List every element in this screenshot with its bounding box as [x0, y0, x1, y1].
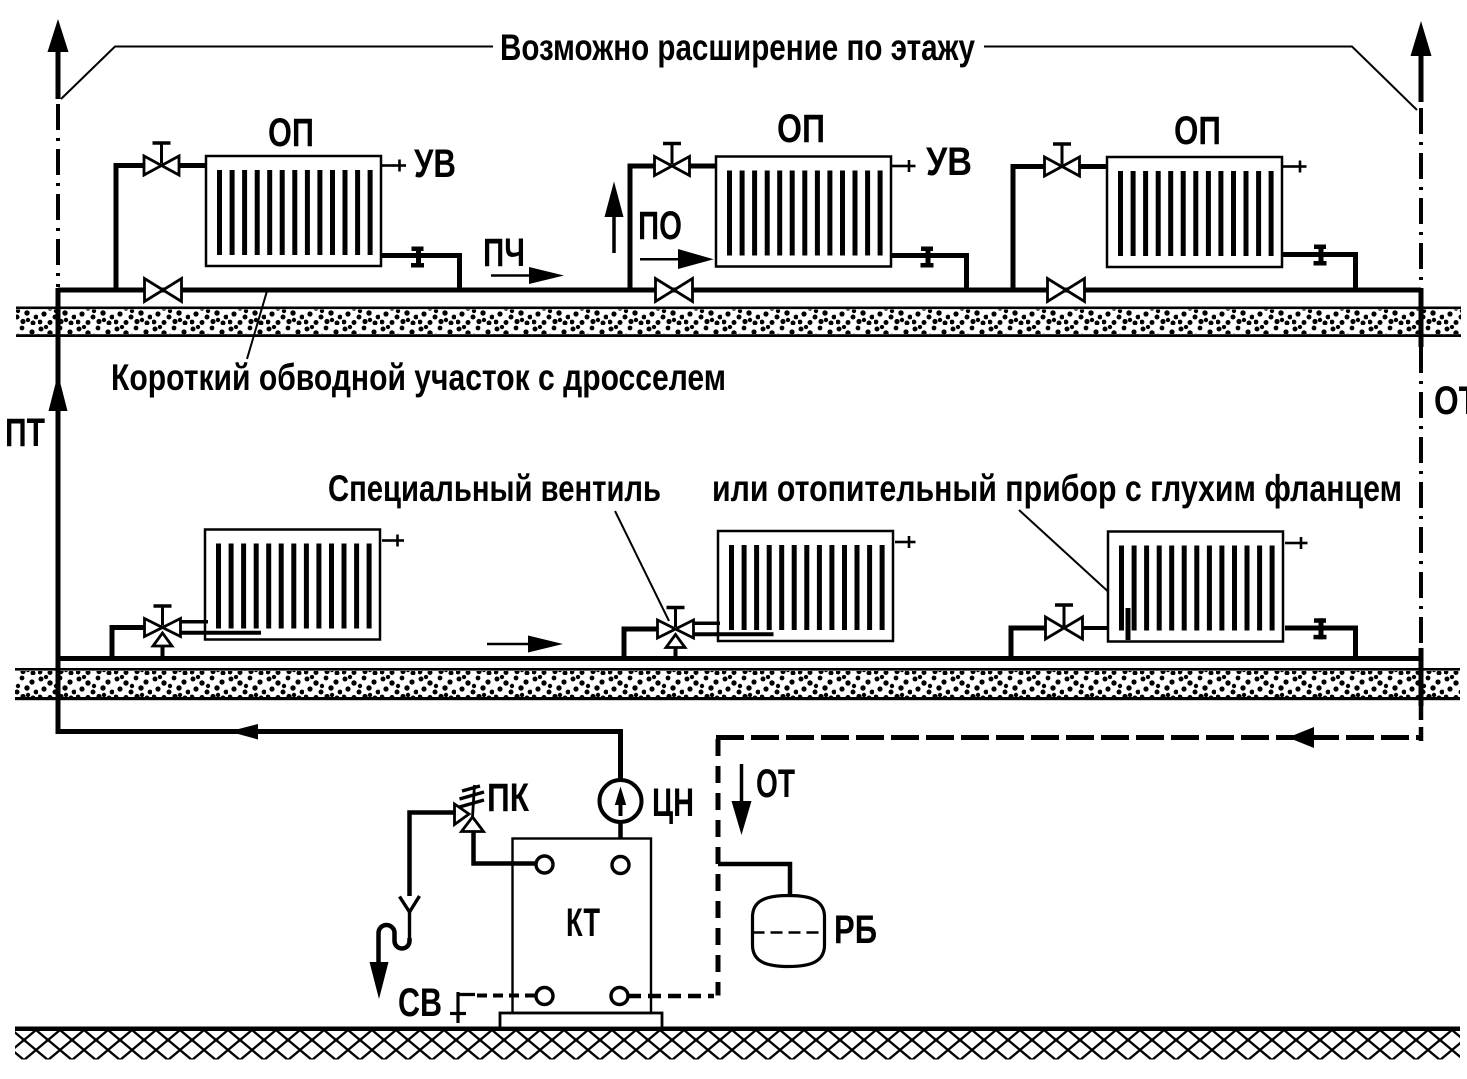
svg-text:РБ: РБ [834, 908, 877, 952]
svg-text:УВ: УВ [414, 142, 456, 186]
svg-text:Возможно расширение по этажу: Возможно расширение по этажу [500, 27, 975, 68]
svg-text:СВ: СВ [398, 981, 442, 1025]
svg-text:ПО: ПО [638, 204, 682, 248]
svg-text:КТ: КТ [566, 901, 600, 945]
svg-text:ОТ: ОТ [1434, 379, 1467, 423]
svg-text:ПТ: ПТ [5, 411, 45, 455]
svg-text:УВ: УВ [926, 140, 972, 184]
svg-text:ЦН: ЦН [652, 781, 694, 825]
svg-text:ОП: ОП [777, 107, 825, 151]
svg-text:Специальный вентиль: Специальный вентиль [328, 468, 661, 509]
svg-text:ОТ: ОТ [756, 762, 795, 806]
svg-text:ОП: ОП [1174, 109, 1221, 153]
svg-text:ПЧ: ПЧ [483, 231, 525, 275]
svg-text:Короткий обводной участок с др: Короткий обводной участок с дросселем [111, 357, 726, 398]
svg-text:или отопительный прибор с глух: или отопительный прибор с глухим фланцем [712, 468, 1402, 509]
svg-text:ОП: ОП [268, 111, 314, 155]
svg-text:ПК: ПК [487, 776, 529, 820]
